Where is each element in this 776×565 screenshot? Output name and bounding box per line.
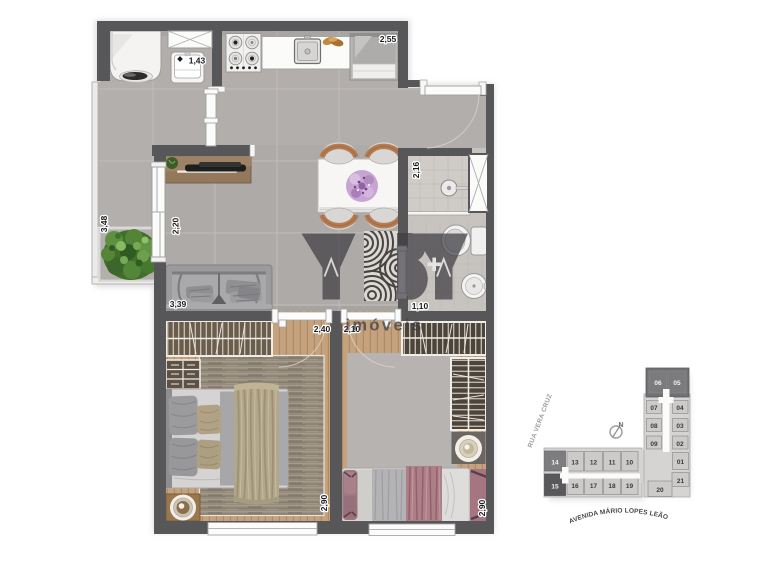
svg-text:15: 15 — [551, 484, 559, 491]
svg-text:2,55: 2,55 — [380, 34, 397, 44]
svg-text:2,20: 2,20 — [171, 217, 181, 234]
svg-text:09: 09 — [650, 441, 658, 448]
svg-text:19: 19 — [626, 483, 634, 490]
svg-text:2,40: 2,40 — [314, 324, 331, 334]
svg-text:3,39: 3,39 — [170, 299, 187, 309]
svg-text:05: 05 — [673, 380, 681, 387]
svg-text:1,43: 1,43 — [189, 56, 206, 66]
svg-text:13: 13 — [571, 460, 579, 467]
svg-text:20: 20 — [656, 487, 664, 494]
svg-text:14: 14 — [551, 460, 559, 467]
svg-text:16: 16 — [571, 483, 579, 490]
svg-text:03: 03 — [676, 423, 684, 430]
svg-text:10: 10 — [626, 460, 634, 467]
svg-text:N: N — [619, 422, 624, 429]
svg-text:2,16: 2,16 — [411, 161, 421, 178]
svg-text:04: 04 — [676, 405, 684, 412]
svg-text:3,48: 3,48 — [99, 215, 109, 232]
svg-text:imóveis: imóveis — [345, 317, 423, 335]
svg-text:01: 01 — [677, 459, 685, 466]
svg-text:07: 07 — [650, 405, 658, 412]
svg-text:1,10: 1,10 — [412, 301, 429, 311]
svg-text:21: 21 — [677, 478, 685, 485]
svg-text:06: 06 — [654, 380, 662, 387]
svg-text:2,90: 2,90 — [319, 494, 329, 511]
svg-text:11: 11 — [609, 460, 616, 467]
svg-text:02: 02 — [676, 441, 684, 448]
svg-text:17: 17 — [590, 483, 598, 490]
svg-text:2,90: 2,90 — [477, 499, 487, 516]
svg-text:18: 18 — [608, 483, 616, 490]
svg-text:08: 08 — [650, 423, 658, 430]
svg-text:12: 12 — [590, 460, 598, 467]
